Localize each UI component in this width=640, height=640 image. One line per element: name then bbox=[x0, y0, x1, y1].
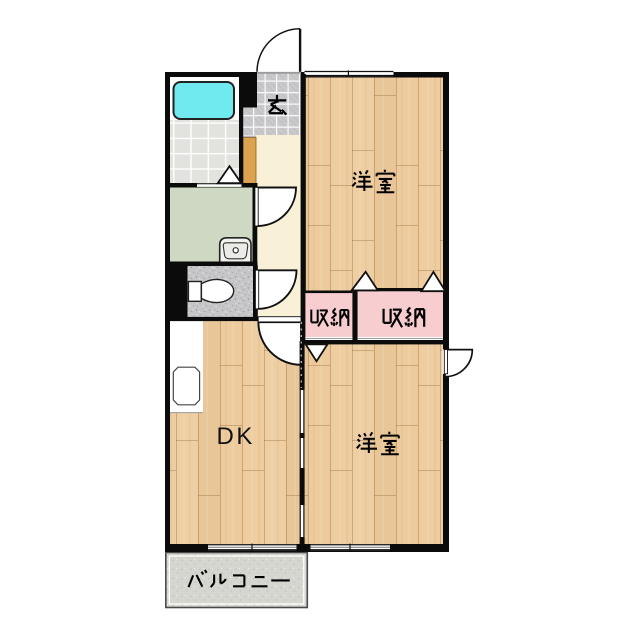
svg-text:DK: DK bbox=[217, 423, 255, 450]
